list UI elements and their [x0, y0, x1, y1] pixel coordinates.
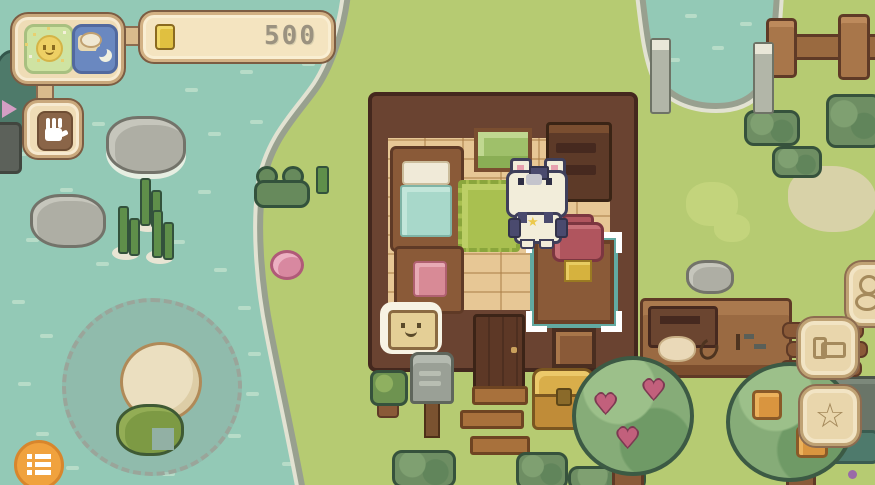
- mailbox[interactable]: [410, 352, 454, 404]
- furniture-button[interactable]: [798, 318, 858, 378]
- direction-arrow-icon: [2, 100, 17, 118]
- pink-flower: [270, 250, 304, 280]
- water-rock: [106, 116, 186, 174]
- grass-rock: [686, 260, 734, 294]
- day-status-button[interactable]: [24, 24, 74, 74]
- crafting-material: [564, 260, 592, 282]
- door-handle: [511, 347, 517, 353]
- bush: [772, 146, 822, 178]
- workbench-cloth: [658, 336, 696, 362]
- selection-bracket: [526, 311, 547, 332]
- cat-strap: [544, 212, 553, 223]
- currency-value: 500: [264, 21, 317, 51]
- cat-eye: [518, 178, 524, 185]
- water-rock: [30, 194, 106, 248]
- chest-lock: [556, 388, 572, 406]
- cat-foot: [520, 239, 535, 249]
- frog-body: [254, 180, 310, 208]
- critter-icon: [859, 275, 875, 295]
- star-button[interactable]: ☆: [800, 386, 860, 446]
- heart-fruit-icon[interactable]: ♥: [616, 426, 639, 452]
- reeds: [112, 202, 140, 262]
- house-door[interactable]: [473, 314, 525, 392]
- potted-plant: [370, 370, 408, 406]
- critter-button[interactable]: [846, 262, 875, 326]
- bush: [826, 94, 875, 148]
- heart-fruit-icon[interactable]: ♥: [594, 392, 617, 418]
- moon-crescent-cut: [96, 46, 107, 57]
- sign-eye: [417, 323, 421, 328]
- heart-fruit-tree[interactable]: ♥ ♥ ♥: [572, 356, 694, 476]
- frog: [248, 166, 312, 208]
- mailbox-slot: [419, 371, 441, 376]
- grass-sprout: [316, 166, 329, 194]
- bed-blanket: [400, 185, 452, 237]
- cat-eye: [546, 178, 552, 185]
- purple-flower: [848, 470, 857, 479]
- currency-bar: 500: [140, 12, 334, 62]
- game-scene: ★ ♥ ♥ ♥: [0, 0, 875, 485]
- bush: [516, 452, 568, 485]
- dresser-drawer: [556, 143, 596, 153]
- fence-post: [838, 14, 870, 80]
- cat-foot: [539, 239, 554, 249]
- critter-icon: [855, 293, 875, 311]
- sleep-status-button[interactable]: [72, 24, 118, 74]
- cat-fur-patch: [526, 174, 542, 185]
- bed[interactable]: [390, 146, 464, 252]
- selection-bracket: [601, 311, 622, 332]
- coin-icon: [155, 24, 175, 50]
- pink-cushion: [413, 261, 447, 297]
- wooden-step: [460, 410, 524, 429]
- house-window: [552, 328, 596, 368]
- cat-arm: [508, 218, 521, 238]
- hand-button-inset: [37, 111, 73, 151]
- sign-smile: [405, 327, 417, 337]
- cat-arm: [555, 218, 568, 238]
- face-sign[interactable]: [380, 302, 442, 354]
- sign-face: [388, 310, 438, 350]
- mailbox-slot: [419, 381, 441, 386]
- selection-bracket: [601, 232, 622, 253]
- reeds: [146, 206, 174, 266]
- inlet-wave-dash: [712, 46, 724, 50]
- quest-menu-button[interactable]: [14, 440, 64, 485]
- dock-pillar: [753, 42, 774, 114]
- inlet-wave-dash: [685, 14, 697, 18]
- mailbox-post: [424, 398, 440, 438]
- cat-belly-star-icon: ★: [527, 215, 539, 230]
- wooden-step: [472, 386, 528, 405]
- grass-patch: [714, 214, 750, 242]
- inlet-wave-dash: [740, 22, 752, 26]
- workbench-stick: [736, 334, 740, 350]
- star-icon: ☆: [803, 393, 857, 439]
- dock-pillar: [650, 38, 671, 114]
- workbench-drawer-slot: [660, 316, 700, 324]
- workbench-tool: [744, 334, 754, 339]
- sun-rays-icon: [33, 33, 36, 36]
- cat-character[interactable]: ★: [506, 158, 568, 244]
- bush: [744, 110, 800, 146]
- orange-fruit-icon[interactable]: [752, 390, 782, 420]
- lilypad-notch: [152, 428, 174, 450]
- bed-pillow: [402, 161, 450, 185]
- hand-icon: [45, 118, 67, 144]
- happy-sun-icon: [36, 35, 63, 62]
- bed-icon: [813, 337, 843, 359]
- heart-fruit-icon[interactable]: ♥: [642, 378, 665, 404]
- shore-rock: [0, 122, 22, 174]
- hand-tool-button[interactable]: [24, 100, 82, 158]
- workbench-tool: [754, 344, 766, 349]
- bush: [392, 450, 456, 485]
